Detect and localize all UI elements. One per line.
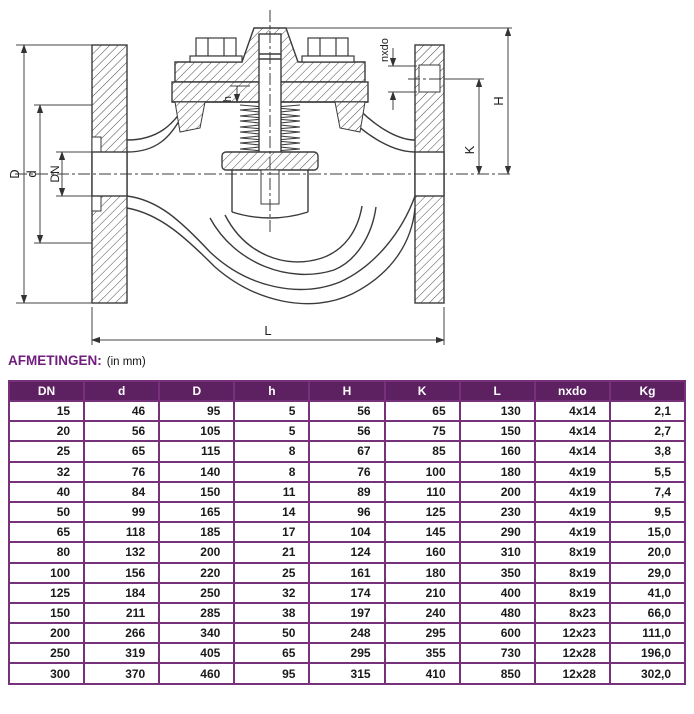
table-cell-d: 95 (159, 401, 234, 421)
table-cell-d: 405 (159, 643, 234, 663)
table-cell-h: 56 (309, 401, 384, 421)
table-cell-kg: 302,0 (610, 663, 685, 683)
table-cell-d: 285 (159, 603, 234, 623)
table-cell-l: 850 (460, 663, 535, 683)
table-row: 2503194056529535573012x28196,0 (9, 643, 685, 663)
table-cell-l: 600 (460, 623, 535, 643)
table-cell-l: 730 (460, 643, 535, 663)
table-row: 2565115867851604x143,8 (9, 441, 685, 461)
table-cell-d: 76 (84, 462, 159, 482)
table-cell-nxdo: 8x23 (535, 603, 610, 623)
table-cell-kg: 196,0 (610, 643, 685, 663)
table-cell-d: 211 (84, 603, 159, 623)
table-cell-k: 355 (385, 643, 460, 663)
table-cell-d: 150 (159, 482, 234, 502)
table-cell-nxdo: 8x19 (535, 542, 610, 562)
table-cell-dn: 65 (9, 522, 84, 542)
table-cell-nxdo: 4x19 (535, 502, 610, 522)
table-cell-k: 75 (385, 421, 460, 441)
table-row: 125184250321742104008x1941,0 (9, 583, 685, 603)
table-cell-h: 96 (309, 502, 384, 522)
table-cell-h: 295 (309, 643, 384, 663)
section-title-unit: (in mm) (107, 356, 146, 368)
table-cell-d: 319 (84, 643, 159, 663)
table-cell-kg: 7,4 (610, 482, 685, 502)
table-cell-kg: 29,0 (610, 563, 685, 583)
table-cell-d: 370 (84, 663, 159, 683)
table-row: 408415011891102004x197,4 (9, 482, 685, 502)
dimensions-table-head: DNdDhHKLnxdoKg (9, 381, 685, 401)
table-cell-h: 174 (309, 583, 384, 603)
table-cell-h: 65 (234, 643, 309, 663)
table-cell-l: 230 (460, 502, 535, 522)
table-cell-k: 85 (385, 441, 460, 461)
table-cell-k: 210 (385, 583, 460, 603)
table-cell-kg: 5,5 (610, 462, 685, 482)
table-cell-dn: 15 (9, 401, 84, 421)
table-cell-h: 5 (234, 401, 309, 421)
table-cell-nxdo: 4x19 (535, 462, 610, 482)
table-cell-h: 315 (309, 663, 384, 683)
table-cell-dn: 20 (9, 421, 84, 441)
column-header-dn: DN (9, 381, 84, 401)
table-cell-h: 104 (309, 522, 384, 542)
table-cell-d: 200 (159, 542, 234, 562)
table-cell-dn: 40 (9, 482, 84, 502)
table-cell-k: 65 (385, 401, 460, 421)
table-cell-k: 295 (385, 623, 460, 643)
table-cell-kg: 20,0 (610, 542, 685, 562)
table-row: 3003704609531541085012x28302,0 (9, 663, 685, 683)
dim-label-L: L (264, 323, 271, 338)
table-row: 150211285381972404808x2366,0 (9, 603, 685, 623)
table-cell-h: 89 (309, 482, 384, 502)
table-row: 32761408761001804x195,5 (9, 462, 685, 482)
table-cell-kg: 3,8 (610, 441, 685, 461)
table-cell-d: 340 (159, 623, 234, 643)
table-row: 2056105556751504x142,7 (9, 421, 685, 441)
table-cell-nxdo: 12x28 (535, 663, 610, 683)
table-cell-h: 8 (234, 462, 309, 482)
table-cell-l: 480 (460, 603, 535, 623)
table-cell-nxdo: 8x19 (535, 563, 610, 583)
table-cell-h: 197 (309, 603, 384, 623)
table-cell-dn: 150 (9, 603, 84, 623)
table-cell-h: 25 (234, 563, 309, 583)
table-cell-h: 248 (309, 623, 384, 643)
table-cell-kg: 9,5 (610, 502, 685, 522)
table-cell-dn: 200 (9, 623, 84, 643)
dim-label-DN: DN (48, 165, 62, 182)
table-cell-d: 185 (159, 522, 234, 542)
table-cell-h: 161 (309, 563, 384, 583)
table-cell-nxdo: 4x14 (535, 401, 610, 421)
dim-label-h: h (222, 96, 234, 102)
column-header-h: h (234, 381, 309, 401)
table-cell-d: 266 (84, 623, 159, 643)
table-cell-h: 14 (234, 502, 309, 522)
datasheet-page: D d DN L H K nxdo h AFMETINGEN:(in mm) D… (0, 0, 694, 714)
table-cell-h: 124 (309, 542, 384, 562)
valve-technical-drawing: D d DN L H K nxdo h (0, 2, 520, 352)
table-cell-d: 220 (159, 563, 234, 583)
table-cell-k: 110 (385, 482, 460, 502)
table-cell-dn: 80 (9, 542, 84, 562)
table-cell-dn: 25 (9, 441, 84, 461)
section-title-label: AFMETINGEN: (8, 353, 102, 368)
dim-label-D: D (7, 169, 22, 178)
table-cell-nxdo: 12x28 (535, 643, 610, 663)
table-cell-kg: 66,0 (610, 603, 685, 623)
table-cell-k: 240 (385, 603, 460, 623)
dim-label-K: K (462, 145, 477, 154)
table-cell-l: 180 (460, 462, 535, 482)
table-cell-d: 56 (84, 421, 159, 441)
table-cell-k: 100 (385, 462, 460, 482)
table-cell-d: 105 (159, 421, 234, 441)
column-header-l: L (460, 381, 535, 401)
table-cell-dn: 125 (9, 583, 84, 603)
table-cell-dn: 32 (9, 462, 84, 482)
column-header-d: d (84, 381, 159, 401)
table-cell-h: 67 (309, 441, 384, 461)
table-cell-d: 250 (159, 583, 234, 603)
table-cell-k: 125 (385, 502, 460, 522)
table-cell-dn: 50 (9, 502, 84, 522)
table-cell-d: 165 (159, 502, 234, 522)
table-cell-kg: 111,0 (610, 623, 685, 643)
table-cell-l: 200 (460, 482, 535, 502)
table-cell-k: 410 (385, 663, 460, 683)
table-cell-l: 160 (460, 441, 535, 461)
dim-label-d: d (24, 170, 39, 177)
table-cell-kg: 2,7 (610, 421, 685, 441)
table-cell-dn: 100 (9, 563, 84, 583)
column-header-d: D (159, 381, 234, 401)
table-cell-h: 17 (234, 522, 309, 542)
table-cell-d: 118 (84, 522, 159, 542)
table-cell-d: 115 (159, 441, 234, 461)
table-cell-nxdo: 12x23 (535, 623, 610, 643)
table-cell-h: 32 (234, 583, 309, 603)
table-cell-dn: 300 (9, 663, 84, 683)
table-cell-kg: 15,0 (610, 522, 685, 542)
table-cell-h: 11 (234, 482, 309, 502)
table-cell-l: 150 (460, 421, 535, 441)
table-cell-k: 160 (385, 542, 460, 562)
column-header-nxdo: nxdo (535, 381, 610, 401)
table-cell-d: 140 (159, 462, 234, 482)
table-cell-d: 132 (84, 542, 159, 562)
table-cell-h: 50 (234, 623, 309, 643)
table-cell-h: 76 (309, 462, 384, 482)
table-cell-k: 145 (385, 522, 460, 542)
table-cell-h: 95 (234, 663, 309, 683)
table-cell-kg: 2,1 (610, 401, 685, 421)
table-cell-d: 99 (84, 502, 159, 522)
dim-label-nxdo: nxdo (379, 38, 391, 62)
valve-cross-section (15, 10, 512, 304)
table-row: 80132200211241603108x1920,0 (9, 542, 685, 562)
table-cell-l: 290 (460, 522, 535, 542)
table-row: 509916514961252304x199,5 (9, 502, 685, 522)
section-title: AFMETINGEN:(in mm) (8, 352, 146, 370)
table-cell-h: 8 (234, 441, 309, 461)
table-cell-h: 56 (309, 421, 384, 441)
table-cell-h: 5 (234, 421, 309, 441)
table-cell-nxdo: 4x14 (535, 421, 610, 441)
table-row: 100156220251611803508x1929,0 (9, 563, 685, 583)
table-cell-kg: 41,0 (610, 583, 685, 603)
table-cell-d: 460 (159, 663, 234, 683)
dim-label-H: H (491, 96, 506, 105)
dimensions-table-wrap: DNdDhHKLnxdoKg 154695556651304x142,12056… (8, 380, 686, 685)
table-cell-h: 21 (234, 542, 309, 562)
column-header-h: H (309, 381, 384, 401)
table-cell-d: 184 (84, 583, 159, 603)
table-cell-l: 400 (460, 583, 535, 603)
table-row: 65118185171041452904x1915,0 (9, 522, 685, 542)
table-cell-d: 46 (84, 401, 159, 421)
table-cell-nxdo: 4x14 (535, 441, 610, 461)
table-cell-nxdo: 8x19 (535, 583, 610, 603)
table-cell-nxdo: 4x19 (535, 482, 610, 502)
table-cell-d: 65 (84, 441, 159, 461)
dimensions-table-body: 154695556651304x142,12056105556751504x14… (9, 401, 685, 684)
table-cell-dn: 250 (9, 643, 84, 663)
column-header-kg: Kg (610, 381, 685, 401)
table-cell-l: 130 (460, 401, 535, 421)
dimensions-table: DNdDhHKLnxdoKg 154695556651304x142,12056… (8, 380, 686, 685)
table-row: 154695556651304x142,1 (9, 401, 685, 421)
table-cell-l: 310 (460, 542, 535, 562)
table-cell-k: 180 (385, 563, 460, 583)
column-header-k: K (385, 381, 460, 401)
table-row: 2002663405024829560012x23111,0 (9, 623, 685, 643)
table-cell-h: 38 (234, 603, 309, 623)
table-cell-d: 84 (84, 482, 159, 502)
table-cell-nxdo: 4x19 (535, 522, 610, 542)
table-cell-l: 350 (460, 563, 535, 583)
table-cell-d: 156 (84, 563, 159, 583)
